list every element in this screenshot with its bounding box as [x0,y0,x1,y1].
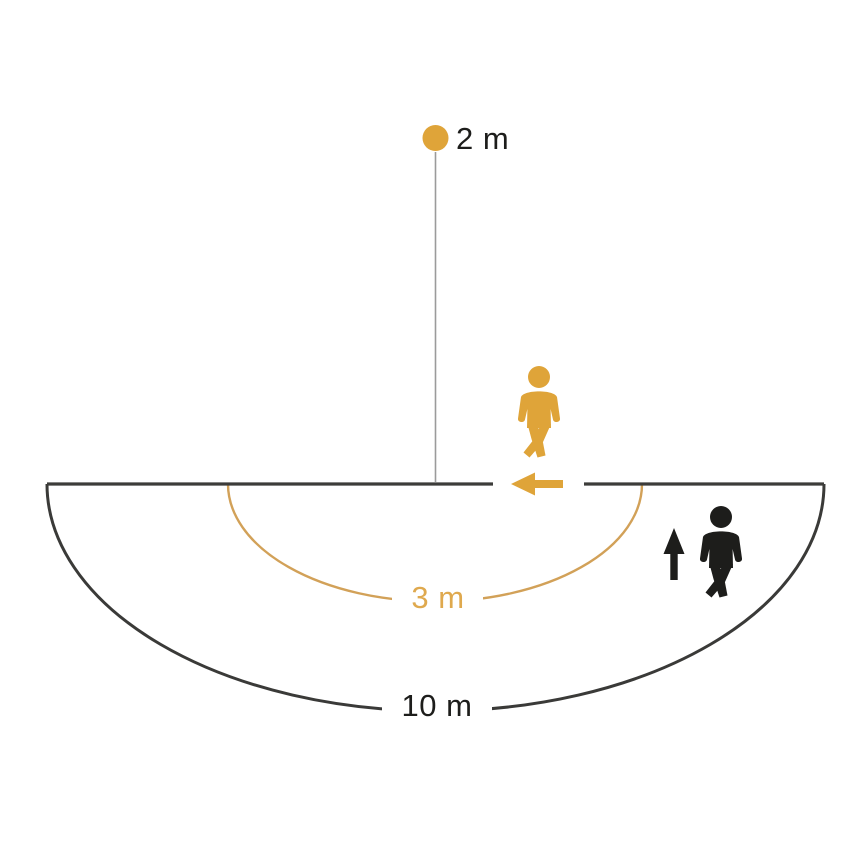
range-diagram-canvas: 2 m 3 m 10 m [0,0,868,868]
tangential-range-label: 10 m [402,688,473,723]
mounting-height-label: 2 m [456,121,509,156]
sensor-dot [423,125,449,151]
sensor-range-diagram: 2 m 3 m 10 m [0,0,868,868]
arrow-left-icon [511,473,563,496]
crossing-person-icon [700,506,742,598]
approaching-person-icon [518,366,560,458]
arrow-up-icon [664,528,685,580]
radial-range-label: 3 m [411,580,464,615]
